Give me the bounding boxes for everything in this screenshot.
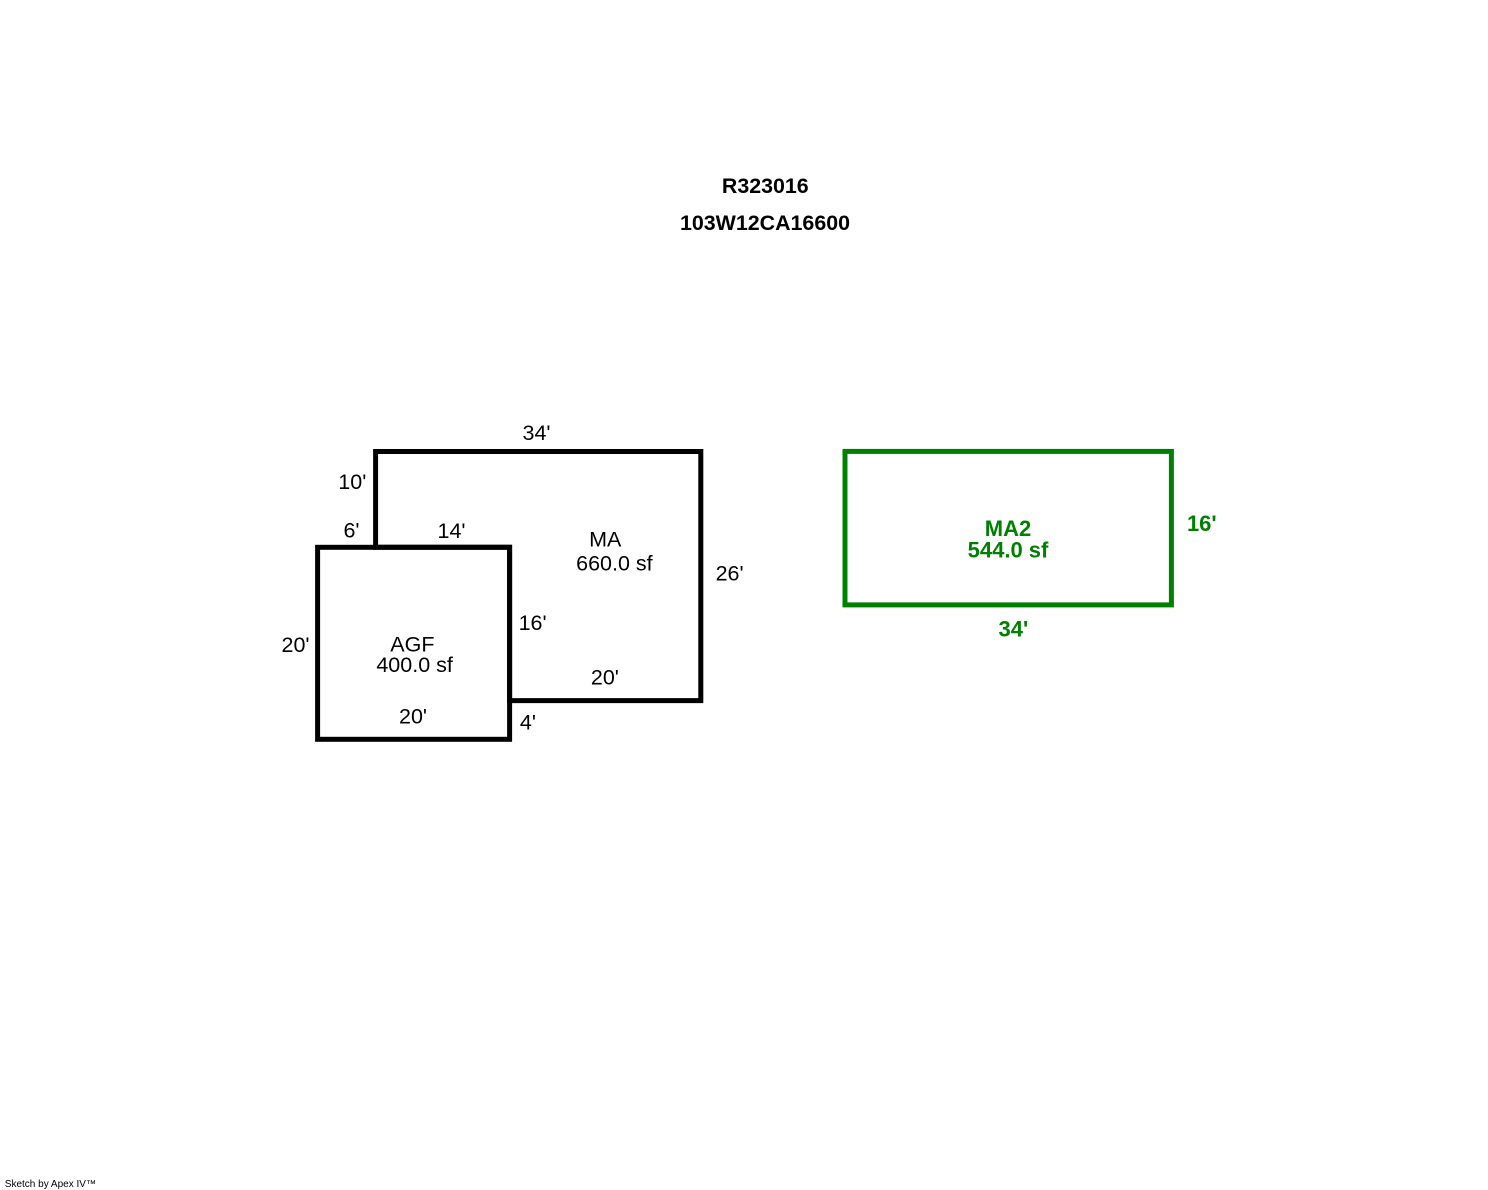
svg-text:16': 16'	[1187, 511, 1217, 536]
svg-text:16': 16'	[519, 611, 547, 635]
svg-text:R323016: R323016	[722, 174, 809, 198]
svg-text:20': 20'	[591, 666, 619, 690]
svg-text:6': 6'	[343, 519, 359, 543]
svg-text:10': 10'	[338, 470, 366, 494]
svg-text:20': 20'	[399, 705, 427, 729]
svg-text:544.0 sf: 544.0 sf	[968, 537, 1049, 562]
svg-text:4': 4'	[520, 711, 536, 735]
svg-text:20': 20'	[281, 633, 309, 657]
svg-text:400.0 sf: 400.0 sf	[376, 653, 453, 677]
svg-text:34': 34'	[999, 617, 1029, 642]
svg-text:Sketch by Apex IV™: Sketch by Apex IV™	[5, 1179, 96, 1190]
svg-text:660.0 sf: 660.0 sf	[576, 552, 653, 576]
svg-text:MA: MA	[589, 528, 622, 552]
svg-text:14': 14'	[437, 519, 465, 543]
svg-text:103W12CA16600: 103W12CA16600	[680, 211, 850, 235]
svg-text:34': 34'	[522, 421, 550, 445]
svg-text:26': 26'	[716, 562, 744, 586]
